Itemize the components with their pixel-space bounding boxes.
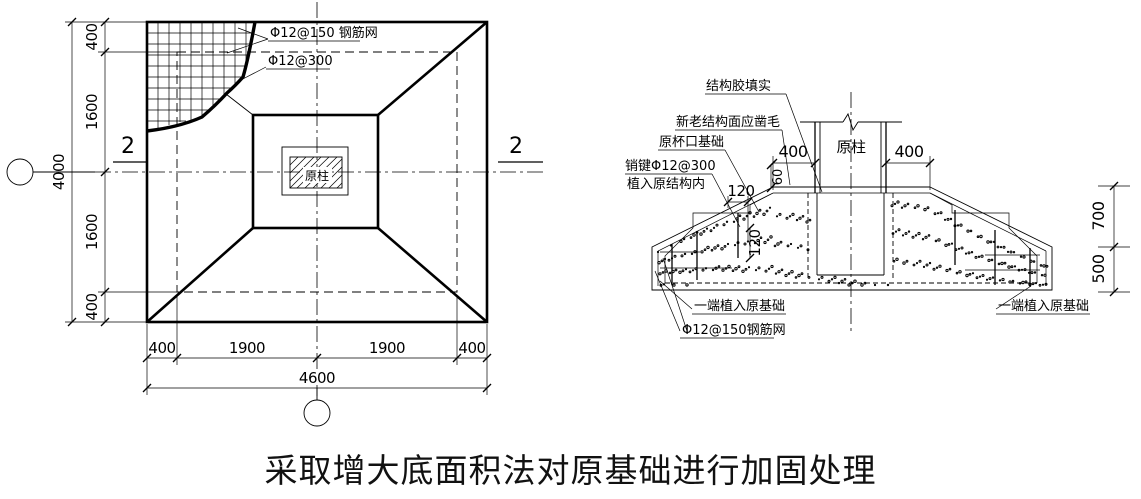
section-annotations: 结构胶填实 新老结构面应凿毛 原杯口基础 销键Φ12@300 植入原结构内 一端… [625,78,1090,338]
dim-bottom-3: 1900 [369,339,405,357]
note-dowel-embed: 植入原结构内 [627,176,705,192]
plan-mesh-hatch [147,22,255,131]
dim-left-3: 1600 [83,214,101,250]
note-original-cup-foundation: 原杯口基础 [659,135,724,150]
dim-bottom-1: 400 [148,339,175,357]
section-column-label: 原柱 [836,138,866,156]
dim-key-120-v: 120 [746,229,764,256]
section-marker-right: 2 [509,134,523,159]
plan-rebar-note: Φ12@300 [268,54,333,69]
dim-left-overall: 4000 [50,154,68,190]
dim-key-120-h: 120 [727,182,754,200]
dim-left-4: 400 [83,293,101,320]
grid-bubble-bottom [304,400,330,426]
dim-height-700: 700 [1089,201,1108,230]
concrete-stipple [657,201,1048,286]
grid-bubble-left [7,159,33,185]
section-dims: 400 400 60 120 120 700 500 [724,142,1130,296]
drawing-title: 采取增大底面积法对原基础进行加固处理 [0,444,1141,492]
dim-bottom-4: 400 [458,339,485,357]
plan-grid-bubbles [7,159,330,426]
dim-col-right: 400 [894,142,923,161]
plan-column-label: 原柱 [305,168,329,183]
plan-view: 原柱 2 2 [7,2,545,426]
drawing-canvas: 原柱 2 2 [0,0,1141,440]
note-embed-left: 一端植入原基础 [694,299,785,314]
mesh-grid-lines [147,22,252,128]
dim-step-60: 60 [771,169,786,186]
section-view: 原柱 [625,78,1130,338]
note-structural-glue: 结构胶填实 [706,78,771,94]
dim-bottom-2: 1900 [229,339,265,357]
plan-column: 原柱 [282,147,348,195]
note-roughen-surface: 新老结构面应凿毛 [676,114,780,130]
dim-left-2: 1600 [83,94,101,130]
dim-height-500: 500 [1089,254,1108,283]
drawing-sheet: 原柱 2 2 [0,0,1141,499]
note-mesh: Φ12@150钢筋网 [682,322,786,338]
dim-left-1: 400 [83,23,101,50]
note-dowel-spec: 销键Φ12@300 [625,159,716,174]
section-marker-left: 2 [121,134,135,159]
dim-col-left: 400 [778,142,807,161]
dim-bottom-overall: 4600 [299,369,335,387]
plan-mesh-note: Φ12@150 钢筋网 [270,25,378,41]
break-symbol [843,114,858,130]
note-embed-right: 一端植入原基础 [998,299,1089,314]
mesh-boundary-curve [147,22,255,131]
